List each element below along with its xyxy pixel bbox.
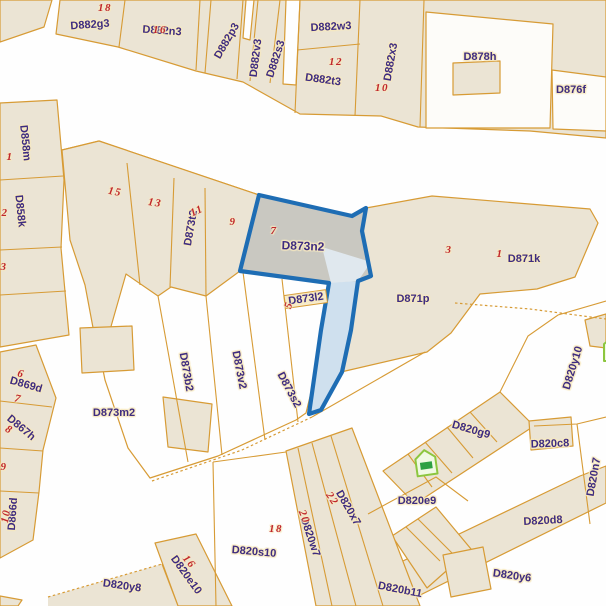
house-number: 9 <box>230 216 237 228</box>
building-d820y6 <box>443 547 491 597</box>
parcel-label-d882w3: D882w3 <box>310 20 352 34</box>
parcel-label-d820d8: D820d8 <box>523 514 563 528</box>
house-number: 13 <box>147 196 163 210</box>
parcel-d876f[interactable] <box>552 70 606 131</box>
house-number: 1 <box>7 151 14 163</box>
parcel-label-d873m2: D873m2 <box>93 407 135 419</box>
house-number: 3 <box>446 244 453 256</box>
parcel-label-d873n2: D873n2 <box>281 238 324 253</box>
house-number: 16 <box>153 24 167 36</box>
parcel-d871-block[interactable] <box>341 196 598 372</box>
parcel-d858-column[interactable] <box>0 100 69 347</box>
parcel-corner-sliver <box>0 596 22 606</box>
house-number: 3 <box>1 261 8 273</box>
building-d873-road <box>163 397 212 452</box>
house-number: 9 <box>1 461 8 473</box>
parcel-top-left[interactable] <box>0 0 52 42</box>
building-d878h <box>453 61 500 95</box>
house-number: 1 <box>497 248 504 260</box>
parcel-d820g9-band[interactable] <box>383 392 534 504</box>
house-number: 18 <box>269 523 283 535</box>
parcel-label-d820c8: D820c8 <box>531 437 570 450</box>
parcel-label-d878h: D878h <box>463 51 496 63</box>
house-number: 18 <box>98 2 112 14</box>
building-d873m2 <box>80 326 134 373</box>
house-number: 10 <box>375 82 389 94</box>
parcel-label-d871p: D871p <box>396 293 429 305</box>
parcel-label-d876f: D876f <box>556 84 586 96</box>
parcel-label-d820e9: D820e9 <box>398 495 437 507</box>
parcel-label-d871k: D871k <box>508 253 540 265</box>
cadastral-map-canvas[interactable]: D882g3 D882n3 D882p3 D882v3 D882s3 D882w… <box>0 0 606 606</box>
house-number: 12 <box>329 56 343 68</box>
house-number: 15 <box>107 185 123 199</box>
house-number: 2 <box>2 207 9 219</box>
house-number: 7 <box>271 225 278 237</box>
